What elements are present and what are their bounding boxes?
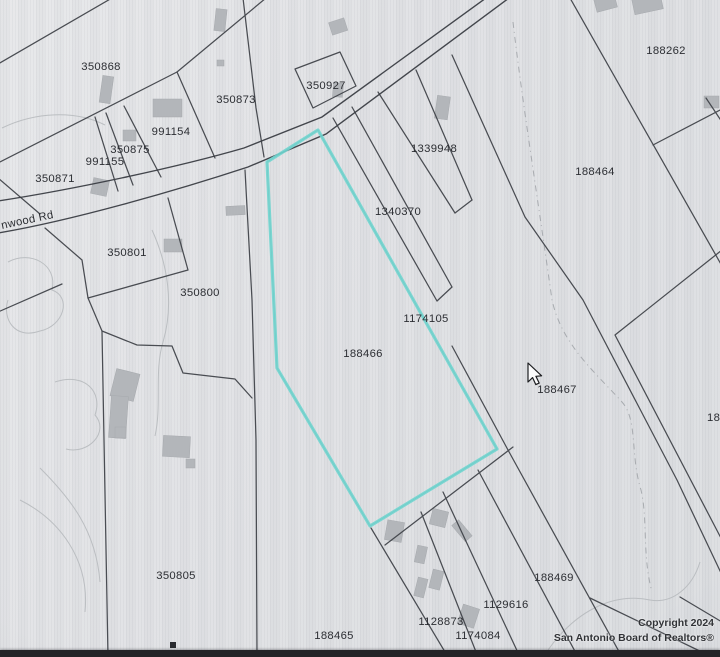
parcel-label-1340370: 1340370 — [375, 206, 421, 218]
parcel-label-1128873: 1128873 — [418, 616, 463, 628]
plat-map-canvas: 350868 350873 350927 188262 991154 35087… — [0, 0, 720, 657]
parcel-label-1129616: 1129616 — [483, 599, 528, 611]
highlighted-parcel-boundary — [267, 130, 497, 526]
parcel-label-350805: 350805 — [156, 570, 196, 582]
parcel-label-991155: 991155 — [86, 156, 125, 168]
parcel-label-188262: 188262 — [646, 45, 686, 57]
copyright-notice: Copyright 2024 San Antonio Board of Real… — [554, 616, 714, 648]
parcel-label-350800: 350800 — [180, 287, 220, 299]
plat-map: 350868 350873 350927 188262 991154 35087… — [0, 0, 720, 657]
parcel-label-1174084: 1174084 — [455, 630, 500, 642]
drainage-line — [513, 22, 652, 592]
parcel-label-350873: 350873 — [216, 94, 256, 106]
parcel-label-188466: 188466 — [343, 348, 383, 360]
parcel-label-350868: 350868 — [81, 61, 121, 73]
parcel-label-350801: 350801 — [107, 247, 147, 259]
bottom-bar — [0, 650, 720, 657]
copyright-line1: Copyright 2024 — [554, 616, 714, 632]
parcel-labels: 350868 350873 350927 188262 991154 35087… — [0, 45, 720, 642]
parcel-label-1174105: 1174105 — [403, 313, 448, 325]
parcel-label-188464: 188464 — [575, 166, 615, 178]
parcel-label-clipped-right: 1884 — [707, 412, 720, 424]
parcel-label-350927: 350927 — [306, 80, 346, 92]
parcel-label-991154: 991154 — [152, 126, 191, 138]
parcel-label-188469: 188469 — [534, 572, 574, 584]
cursor-icon — [528, 363, 542, 385]
copyright-line2: San Antonio Board of Realtors® — [554, 631, 714, 647]
parcel-label-188465: 188465 — [314, 630, 354, 642]
highlighted-parcel[interactable] — [267, 130, 497, 526]
parcel-label-188467: 188467 — [537, 384, 577, 396]
parcel-label-350871: 350871 — [35, 173, 75, 185]
parcel-label-1339948: 1339948 — [411, 143, 457, 155]
parcel-label-350875: 350875 — [110, 144, 150, 156]
road-label: nwood Rd — [0, 209, 55, 232]
